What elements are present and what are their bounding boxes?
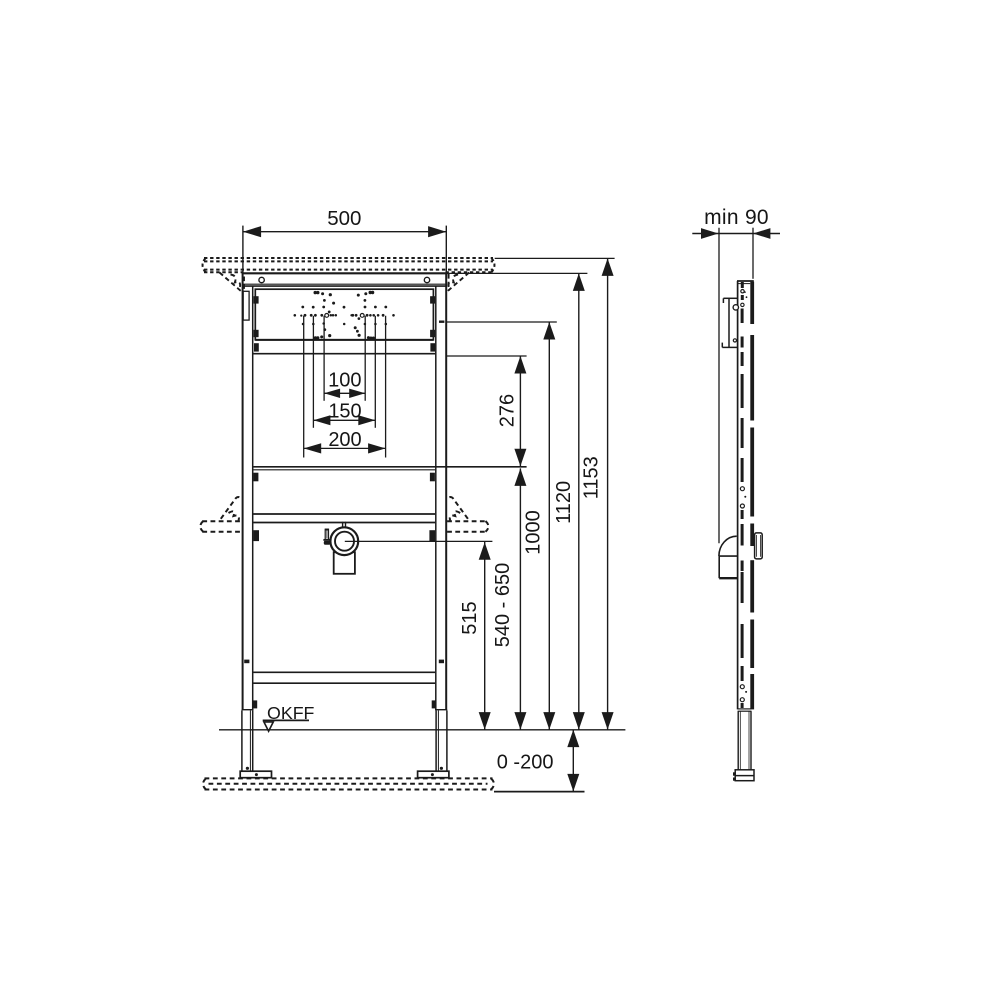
svg-text:min 90: min 90 (704, 206, 769, 229)
svg-text:500: 500 (327, 207, 361, 230)
svg-text:1153: 1153 (581, 456, 603, 499)
svg-text:100: 100 (328, 370, 361, 392)
svg-text:1000: 1000 (523, 510, 545, 555)
svg-text:1120: 1120 (553, 481, 575, 524)
svg-text:0 -200: 0 -200 (497, 752, 554, 774)
svg-text:540 - 650: 540 - 650 (492, 563, 514, 648)
svg-text:515: 515 (459, 601, 481, 634)
svg-text:276: 276 (497, 394, 519, 427)
svg-text:150: 150 (328, 401, 361, 423)
svg-text:200: 200 (328, 429, 361, 451)
